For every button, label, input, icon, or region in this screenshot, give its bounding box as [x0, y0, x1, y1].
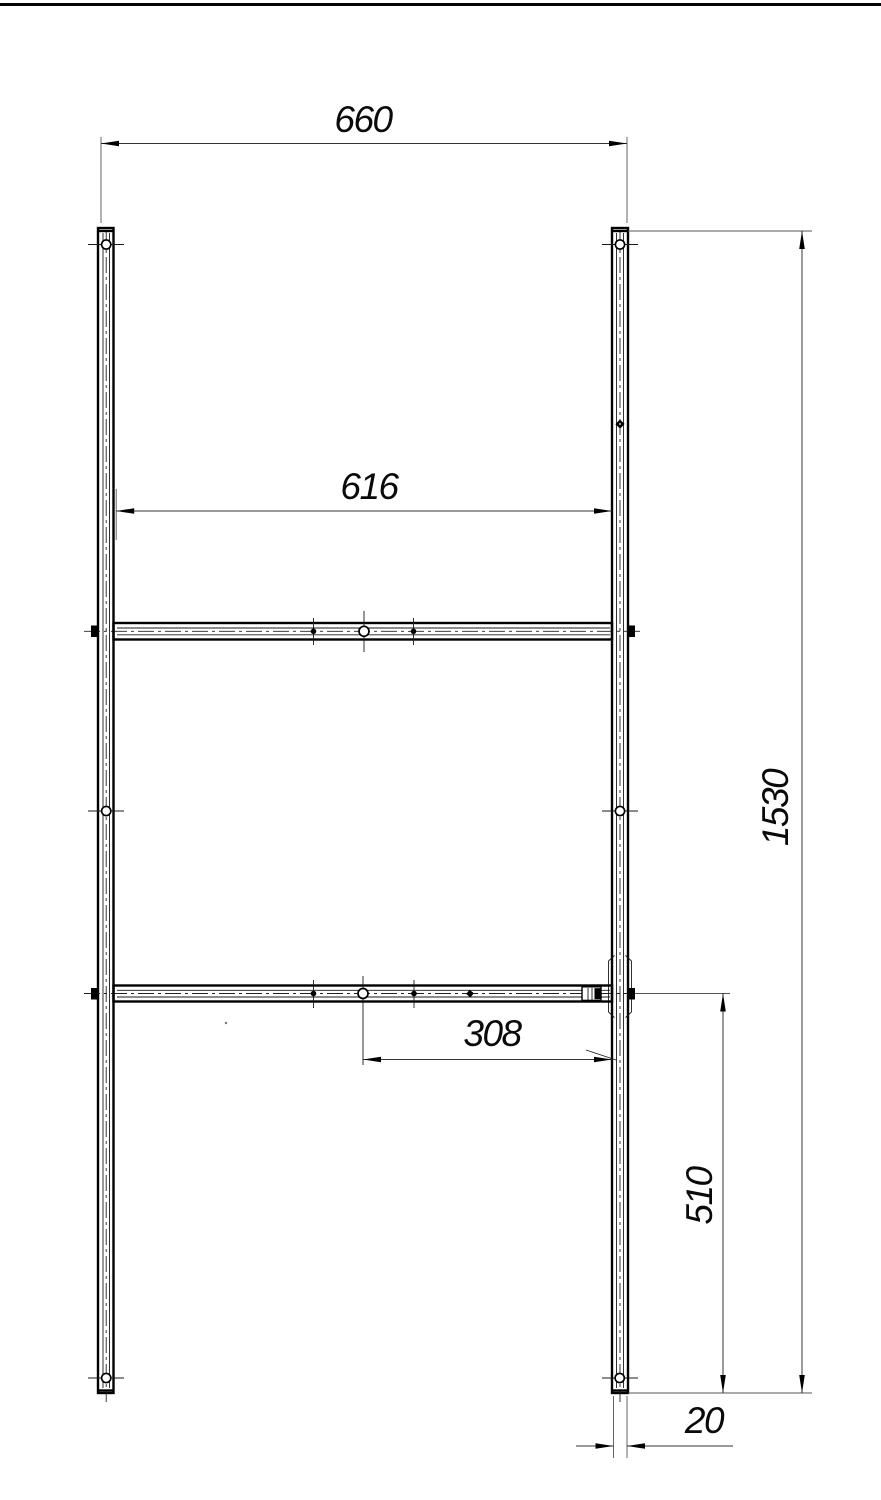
right-post-bottom-hole	[602, 1373, 638, 1382]
dimension-label-616: 616	[340, 466, 399, 507]
arrowhead-left	[116, 508, 134, 514]
left-post-middle-hole	[88, 806, 124, 815]
left-post-bottom-hole	[88, 1373, 124, 1382]
dimension-profile-width: 20	[576, 1396, 733, 1458]
lower-rung-left-rivet	[311, 980, 317, 1008]
right-post-top-hole	[602, 240, 638, 249]
hole	[358, 989, 368, 999]
upper-rung	[84, 611, 643, 652]
dimension-label-660: 660	[334, 99, 393, 140]
dimension-label-510: 510	[679, 1165, 720, 1224]
hole	[102, 1373, 111, 1382]
hole	[615, 240, 624, 249]
arrowhead-left	[101, 141, 119, 147]
dimension-label-1530: 1530	[755, 768, 796, 846]
hole	[102, 240, 111, 249]
arrowhead-right	[609, 141, 627, 147]
arrowhead-left	[363, 1057, 381, 1063]
dimension-label-20: 20	[684, 1400, 725, 1441]
right-post-middle-hole	[602, 806, 638, 815]
left-post	[88, 228, 124, 1402]
arrowhead-left	[627, 1443, 645, 1449]
arrowhead-down	[799, 1375, 805, 1393]
lower-rung-center-hole	[358, 976, 368, 1065]
hole	[359, 626, 369, 636]
dimension-overall-height: 1530	[628, 231, 812, 1393]
hole	[615, 806, 624, 815]
upper-rung-center-hole	[359, 611, 369, 652]
right-bolt-tab	[628, 626, 635, 638]
dimension-lower-height: 510	[635, 994, 730, 1394]
lower-rung	[84, 976, 643, 1065]
stray-dot	[225, 1022, 227, 1024]
left-post-top-hole	[88, 240, 124, 249]
bracket-pin	[595, 988, 602, 999]
arrowhead-up	[720, 994, 726, 1012]
dimension-hole-to-post: 308	[363, 1013, 612, 1062]
lower-rung-right-rivet	[411, 980, 417, 1008]
arrowhead-right	[596, 1443, 614, 1449]
dimension-label-308: 308	[463, 1013, 522, 1054]
left-bolt-tab	[91, 626, 98, 638]
arrowhead-down	[720, 1375, 726, 1393]
rivet	[311, 991, 317, 997]
left-bolt-tab	[91, 988, 98, 1000]
frame-technical-drawing: 660 616 308 1530 510	[0, 0, 881, 1500]
hole	[615, 1373, 624, 1382]
arrowhead-up	[799, 231, 805, 249]
right-bolt-tab	[628, 988, 635, 1000]
drawing-sheet: 660 616 308 1530 510	[0, 0, 881, 1500]
weld-mark-center	[619, 423, 621, 425]
rivet	[411, 991, 417, 997]
dimension-rung-length: 616	[116, 466, 612, 540]
arrowhead-right	[594, 508, 612, 514]
weld-mark	[466, 990, 474, 998]
right-post-backing-plate	[586, 956, 632, 1061]
rivet	[411, 629, 417, 635]
hole	[102, 806, 111, 815]
rivet	[311, 629, 317, 635]
dimension-overall-width: 660	[101, 99, 627, 223]
right-post	[586, 228, 638, 1402]
clamp-bracket	[582, 987, 601, 1001]
